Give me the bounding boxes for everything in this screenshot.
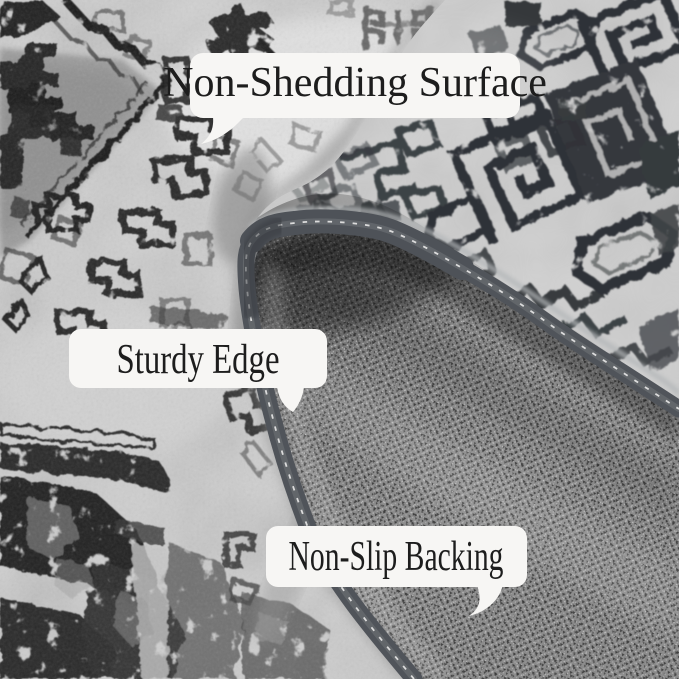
svg-text:Non-Slip Backing: Non-Slip Backing bbox=[289, 534, 504, 580]
svg-text:Sturdy Edge: Sturdy Edge bbox=[117, 337, 280, 383]
svg-text:Non-Shedding Surface: Non-Shedding Surface bbox=[163, 60, 547, 106]
